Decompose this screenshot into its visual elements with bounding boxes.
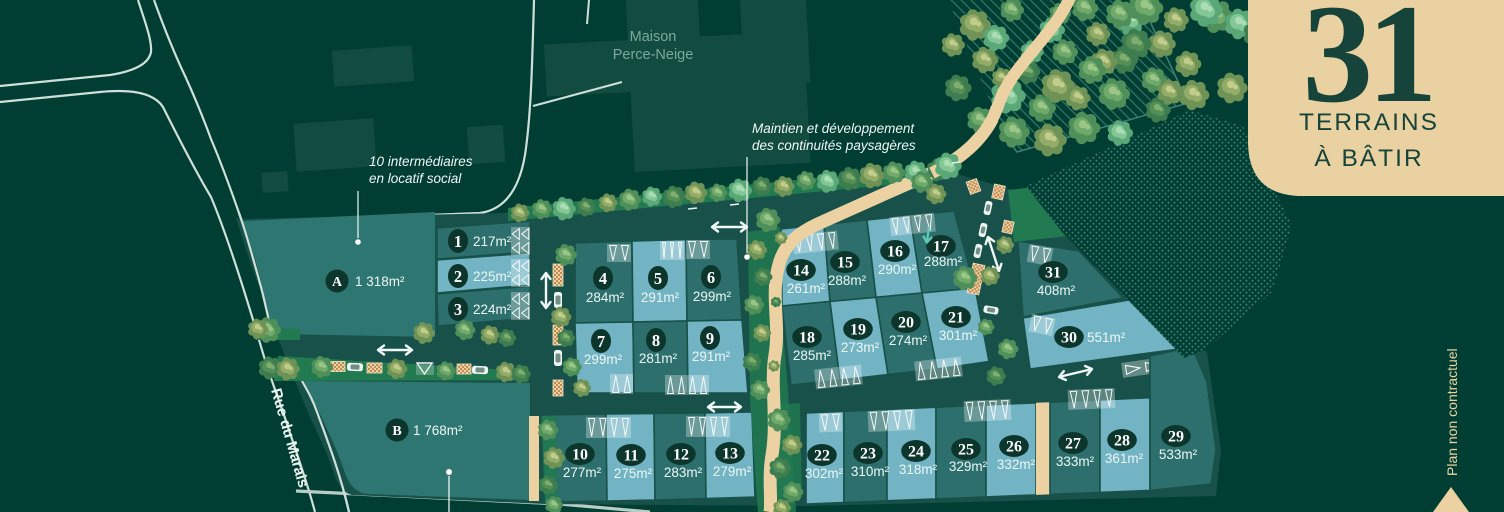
svg-text:1 768m²: 1 768m² [413,423,463,438]
svg-text:23: 23 [860,446,876,463]
svg-text:217m²: 217m² [473,234,512,249]
svg-text:291m²: 291m² [692,349,731,364]
svg-text:5: 5 [654,269,662,288]
svg-text:Maison: Maison [630,29,677,45]
svg-text:B: B [392,424,401,439]
svg-text:332m²: 332m² [997,457,1036,472]
svg-text:15: 15 [837,255,853,272]
svg-text:20: 20 [898,315,914,332]
svg-text:17: 17 [933,239,949,256]
svg-text:TERRAINS: TERRAINS [1299,109,1439,136]
svg-text:302m²: 302m² [805,466,844,481]
svg-text:533m²: 533m² [1159,447,1198,462]
svg-text:299m²: 299m² [584,352,623,367]
svg-text:11: 11 [623,448,638,465]
svg-text:225m²: 225m² [473,269,512,284]
svg-text:24: 24 [908,444,924,461]
svg-text:8: 8 [652,331,660,350]
svg-text:290m²: 290m² [878,262,917,277]
svg-text:291m²: 291m² [641,290,680,305]
svg-text:10: 10 [572,447,588,464]
svg-text:Perce-Neige: Perce-Neige [613,47,694,63]
svg-text:À BÂTIR: À BÂTIR [1314,145,1423,172]
svg-text:26: 26 [1006,439,1022,456]
svg-text:Plan non contractuel: Plan non contractuel [1444,348,1460,476]
svg-text:275m²: 275m² [614,466,653,481]
svg-text:310m²: 310m² [851,464,890,479]
svg-text:10 intermédiaires: 10 intermédiaires [369,154,473,169]
svg-text:2: 2 [454,267,462,286]
svg-text:299m²: 299m² [693,289,732,304]
svg-text:3: 3 [454,300,462,319]
svg-text:25: 25 [958,442,974,459]
svg-text:29: 29 [1168,429,1184,446]
svg-text:283m²: 283m² [664,465,703,480]
svg-text:19: 19 [850,322,866,339]
svg-text:361m²: 361m² [1105,451,1144,466]
svg-text:16: 16 [887,244,903,261]
svg-text:21: 21 [948,310,964,327]
svg-text:279m²: 279m² [713,464,752,479]
svg-text:408m²: 408m² [1037,283,1076,298]
svg-text:7: 7 [597,332,605,351]
svg-text:551m²: 551m² [1087,330,1126,345]
svg-text:288m²: 288m² [828,273,867,288]
svg-text:1 318m²: 1 318m² [355,274,405,289]
svg-text:318m²: 318m² [899,462,938,477]
svg-text:18: 18 [799,330,815,347]
svg-text:12: 12 [673,447,689,464]
svg-text:en locatif social: en locatif social [369,171,462,186]
svg-text:4: 4 [599,269,607,288]
svg-text:333m²: 333m² [1056,454,1095,469]
svg-text:22: 22 [814,448,830,465]
svg-text:des continuités paysagères: des continuités paysagères [752,138,916,153]
svg-text:274m²: 274m² [889,333,928,348]
svg-text:288m²: 288m² [924,254,963,269]
svg-text:30: 30 [1061,330,1077,347]
svg-text:301m²: 301m² [939,328,978,343]
svg-text:329m²: 329m² [949,459,988,474]
svg-text:6: 6 [707,268,715,287]
svg-text:14: 14 [793,263,809,280]
svg-text:285m²: 285m² [793,348,832,363]
svg-text:27: 27 [1065,436,1081,453]
svg-text:273m²: 273m² [841,340,880,355]
svg-text:224m²: 224m² [473,302,512,317]
svg-text:13: 13 [722,446,738,463]
svg-text:Maintien et développement: Maintien et développement [752,121,915,136]
svg-text:281m²: 281m² [639,351,678,366]
svg-text:28: 28 [1114,433,1130,450]
svg-text:9: 9 [706,329,714,348]
svg-text:277m²: 277m² [563,465,602,480]
svg-text:261m²: 261m² [787,281,826,296]
svg-text:1: 1 [454,232,462,251]
svg-text:31: 31 [1045,265,1061,282]
svg-text:284m²: 284m² [586,290,625,305]
svg-text:A: A [332,275,343,290]
